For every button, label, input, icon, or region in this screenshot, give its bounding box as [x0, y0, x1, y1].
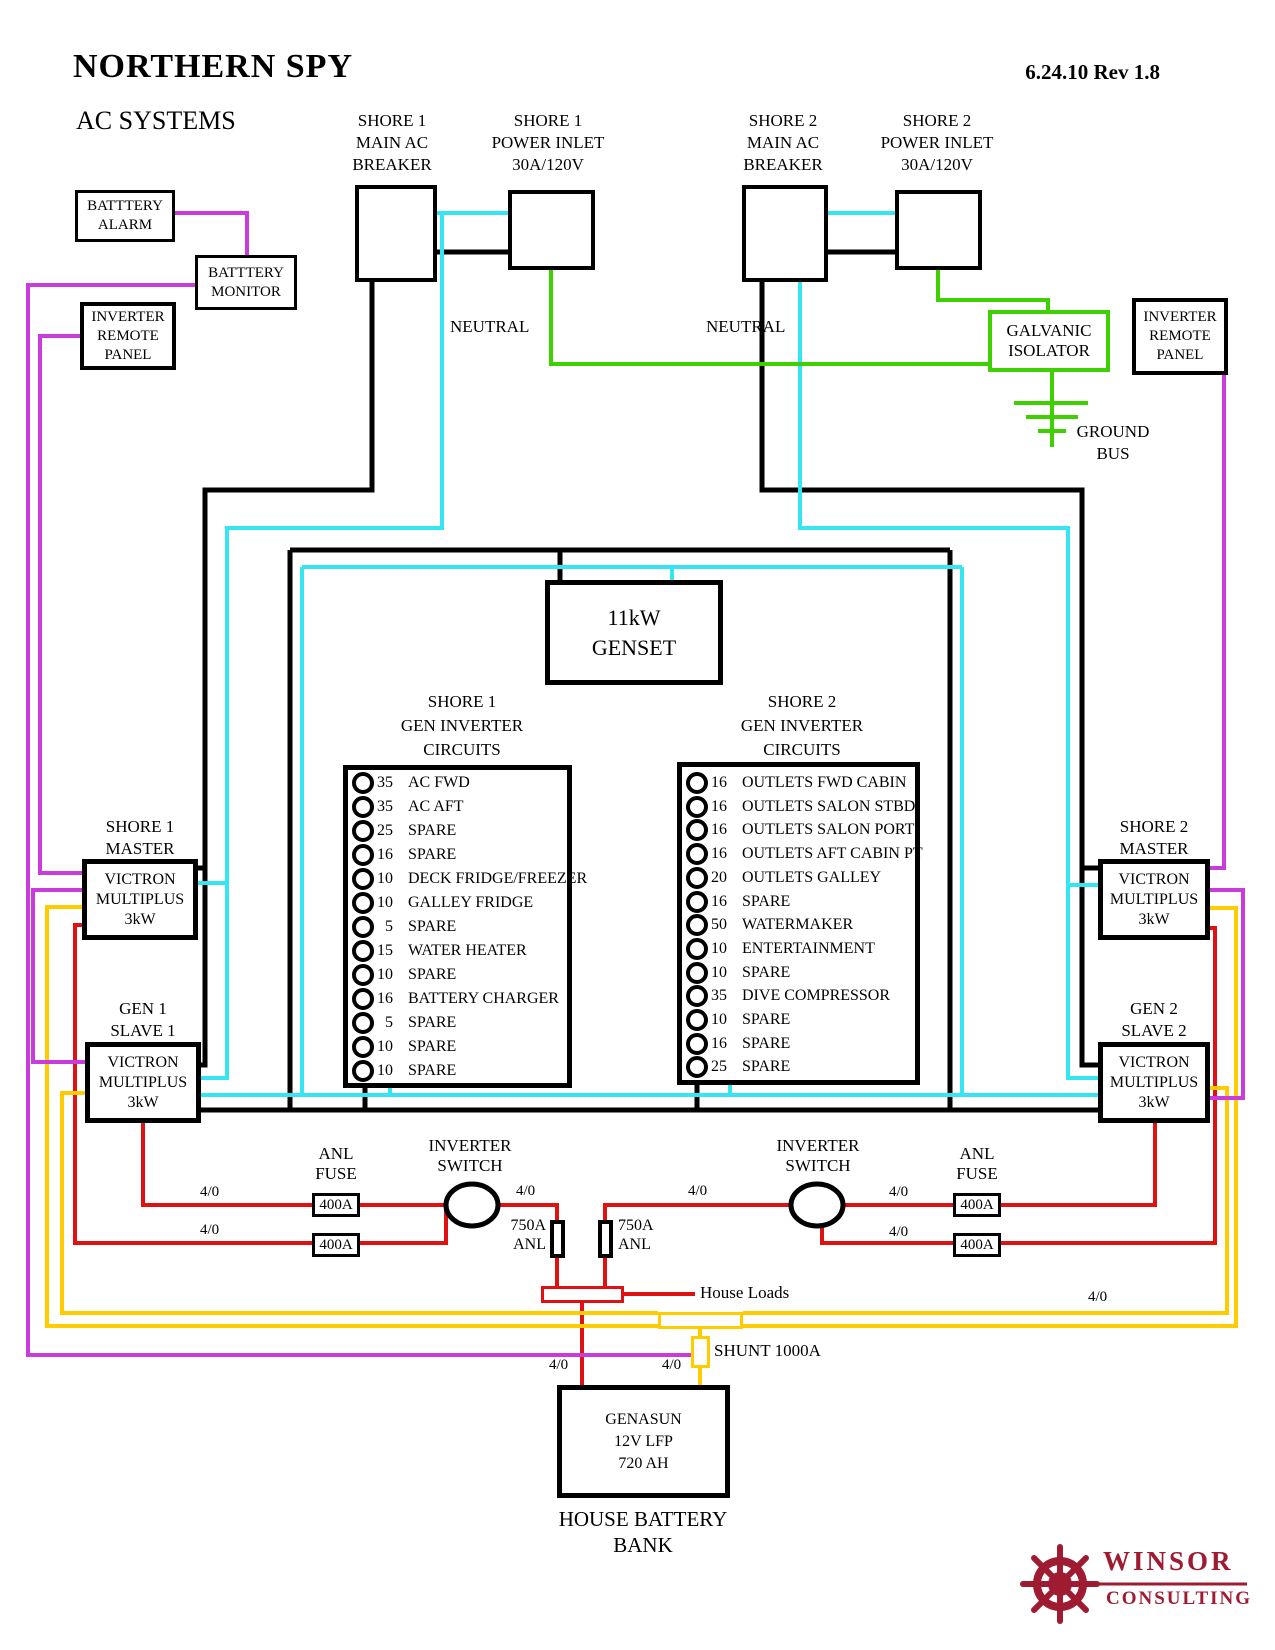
label-line: FUSE: [296, 1164, 376, 1184]
shore1-breaker-label: SHORE 1 MAIN AC BREAKER: [312, 110, 472, 176]
label-line: ISOLATOR: [1008, 341, 1090, 361]
circuit-row: 16SPARE: [682, 1032, 915, 1056]
circuit-row: 16OUTLETS SALON STBD: [682, 795, 915, 819]
label-line: SHORE 1: [468, 110, 628, 132]
inverter-switch-label-right: INVERTER SWITCH: [748, 1136, 888, 1176]
label-line: BANK: [513, 1532, 773, 1558]
shore1-power-inlet-box: [508, 190, 595, 270]
circuit-label: DIVE COMPRESSOR: [742, 984, 890, 1007]
neutral-label-shore2: NEUTRAL: [706, 316, 785, 338]
breaker-amps: 10: [363, 891, 393, 914]
circuit-row: 35AC FWD: [348, 771, 567, 795]
house-battery-box: GENASUN 12V LFP 720 AH: [557, 1385, 730, 1498]
circuit-label: OUTLETS GALLEY: [742, 866, 881, 889]
fuse-750a-right-box: [598, 1220, 613, 1258]
revision-label: 6.24.10 Rev 1.8: [1000, 60, 1160, 85]
breaker-amps: 50: [697, 913, 727, 936]
circuit-label: DECK FRIDGE/FREEZER: [408, 867, 587, 890]
label-line: MASTER: [1084, 838, 1224, 860]
label-line: MULTIPLUS: [1110, 1073, 1198, 1093]
circuit-label: SPARE: [408, 843, 456, 866]
awg-label: 4/0: [200, 1222, 219, 1239]
label-line: GENASUN: [605, 1409, 681, 1431]
label-line: SHORE 2: [857, 110, 1017, 132]
slave2-label: GEN 2 SLAVE 2: [1084, 998, 1224, 1042]
breaker-amps: 16: [697, 795, 727, 818]
label-line: INVERTER: [1143, 308, 1216, 327]
circuit-row: 16BATTERY CHARGER: [348, 987, 567, 1011]
label-line: BREAKER: [703, 154, 863, 176]
circuit-label: OUTLETS SALON STBD: [742, 795, 915, 818]
label-line: ANL: [494, 1235, 546, 1254]
circuit-label: GALLEY FRIDGE: [408, 891, 533, 914]
circuit-label: SPARE: [408, 1011, 456, 1034]
breaker-amps: 16: [697, 818, 727, 841]
fuse-750a-left-box: [550, 1220, 565, 1258]
label-line: VICTRON: [1118, 1053, 1189, 1073]
label-line: 400A: [319, 1235, 352, 1255]
breaker-amps: 10: [363, 1035, 393, 1058]
label-line: REMOTE: [1149, 327, 1211, 346]
ground-bus-label: GROUND BUS: [1070, 421, 1156, 465]
galvanic-isolator-box: GALVANIC ISOLATOR: [988, 310, 1110, 372]
circuit-label: SPARE: [742, 1032, 790, 1055]
inverter-remote-panel-left-box: INVERTER REMOTE PANEL: [80, 302, 176, 370]
label-line: BATTTERY: [208, 264, 284, 283]
victron-master1-box: VICTRON MULTIPLUS 3kW: [82, 859, 198, 940]
victron-slave1-box: VICTRON MULTIPLUS 3kW: [85, 1042, 201, 1123]
label-line: 750A: [494, 1216, 546, 1235]
label-line: INVERTER: [400, 1136, 540, 1156]
circuit-label: SPARE: [408, 819, 456, 842]
neutral-label-shore1: NEUTRAL: [450, 316, 529, 338]
label-line: 30A/120V: [857, 154, 1017, 176]
circuit-label: SPARE: [408, 915, 456, 938]
awg-label: 4/0: [662, 1357, 681, 1374]
circuit-row: 10SPARE: [348, 1035, 567, 1059]
circuit-row: 16OUTLETS SALON PORT: [682, 818, 915, 842]
circuit-row: 16OUTLETS AFT CABIN PT: [682, 842, 915, 866]
label-line: INVERTER: [91, 308, 164, 327]
label-line: 400A: [960, 1195, 993, 1215]
circuit-row: 5SPARE: [348, 1011, 567, 1035]
breaker-amps: 16: [363, 843, 393, 866]
label-line: 30A/120V: [468, 154, 628, 176]
breaker-amps: 15: [363, 939, 393, 962]
awg-label: 4/0: [889, 1184, 908, 1201]
fuse-750a-left-label: 750A ANL: [494, 1216, 546, 1254]
label-line: MASTER: [70, 838, 210, 860]
breaker-amps: 16: [697, 771, 727, 794]
circuit-label: WATERMAKER: [742, 913, 853, 936]
breaker-amps: 10: [363, 963, 393, 986]
shore2-circuit-list: 16OUTLETS FWD CABIN16OUTLETS SALON STBD1…: [677, 762, 920, 1085]
label-line: ANL: [618, 1235, 670, 1254]
circuit-row: 20OUTLETS GALLEY: [682, 866, 915, 890]
circuit-row: 50WATERMAKER: [682, 913, 915, 937]
shore2-power-inlet-box: [895, 190, 982, 270]
circuit-label: WATER HEATER: [408, 939, 527, 962]
label-line: SHORE 1: [70, 816, 210, 838]
shore1-main-breaker-box: [355, 185, 437, 282]
logo-company-name: WINSOR: [1103, 1546, 1234, 1577]
circuit-label: SPARE: [742, 1055, 790, 1078]
breaker-amps: 10: [363, 867, 393, 890]
fuse-400a-box: 400A: [312, 1233, 360, 1257]
battery-monitor-box: BATTTERY MONITOR: [195, 255, 297, 310]
circuit-label: OUTLETS FWD CABIN: [742, 771, 906, 794]
shunt-box: [691, 1336, 710, 1368]
breaker-amps: 16: [697, 842, 727, 865]
circuit-label: SPARE: [742, 890, 790, 913]
anl-fuse-label-right: ANL FUSE: [937, 1144, 1017, 1184]
label-line: ANL: [296, 1144, 376, 1164]
label-line: INVERTER: [748, 1136, 888, 1156]
label-line: POWER INLET: [857, 132, 1017, 154]
breaker-amps: 20: [697, 866, 727, 889]
label-line: GEN INVERTER: [362, 714, 562, 738]
breaker-amps: 10: [363, 1059, 393, 1082]
circuit-label: OUTLETS AFT CABIN PT: [742, 842, 923, 865]
shore2-breaker-label: SHORE 2 MAIN AC BREAKER: [703, 110, 863, 176]
label-line: SWITCH: [400, 1156, 540, 1176]
house-loads-label: House Loads: [700, 1282, 789, 1304]
circuit-label: SPARE: [408, 1059, 456, 1082]
circuit-label: SPARE: [742, 961, 790, 984]
inverter-remote-panel-right-box: INVERTER REMOTE PANEL: [1132, 298, 1228, 375]
label-line: SHORE 2: [1084, 816, 1224, 838]
circuit-row: 10SPARE: [348, 963, 567, 987]
label-line: PANEL: [105, 346, 152, 365]
breaker-amps: 10: [697, 961, 727, 984]
circuit-label: AC FWD: [408, 771, 470, 794]
master2-label: SHORE 2 MASTER: [1084, 816, 1224, 860]
circuit-row: 35DIVE COMPRESSOR: [682, 984, 915, 1008]
label-line: MULTIPLUS: [96, 890, 184, 910]
circuit-label: BATTERY CHARGER: [408, 987, 559, 1010]
dc-positive-wires: [75, 925, 1215, 1385]
label-line: BREAKER: [312, 154, 472, 176]
page-title: NORTHERN SPY: [73, 48, 353, 86]
breaker-amps: 16: [363, 987, 393, 1010]
label-line: CIRCUITS: [702, 738, 902, 762]
circuit-row: 16SPARE: [682, 890, 915, 914]
label-line: VICTRON: [104, 870, 175, 890]
circuit-label: ENTERTAINMENT: [742, 937, 875, 960]
circuit-label: SPARE: [408, 963, 456, 986]
inverter-switch-label-left: INVERTER SWITCH: [400, 1136, 540, 1176]
shore2-inlet-label: SHORE 2 POWER INLET 30A/120V: [857, 110, 1017, 176]
circuit-label: AC AFT: [408, 795, 464, 818]
label-line: MULTIPLUS: [1110, 890, 1198, 910]
label-line: GEN 2: [1084, 998, 1224, 1020]
circuit-row: 15WATER HEATER: [348, 939, 567, 963]
awg-label: 4/0: [200, 1184, 219, 1201]
circuit-row: 10GALLEY FRIDGE: [348, 891, 567, 915]
fuse-750a-right-label: 750A ANL: [618, 1216, 670, 1254]
awg-label: 4/0: [549, 1357, 568, 1374]
breaker-amps: 35: [363, 795, 393, 818]
awg-label: 4/0: [688, 1183, 707, 1200]
label-line: SHORE 2: [702, 690, 902, 714]
label-line: MAIN AC: [312, 132, 472, 154]
circuit-label: SPARE: [408, 1035, 456, 1058]
page-subtitle: AC SYSTEMS: [76, 106, 236, 136]
fuse-400a-box: 400A: [312, 1193, 360, 1217]
label-line: 3kW: [1138, 910, 1169, 930]
label-line: GEN INVERTER: [702, 714, 902, 738]
shore2-main-breaker-box: [742, 185, 828, 282]
label-line: PANEL: [1157, 346, 1204, 365]
breaker-amps: 35: [697, 984, 727, 1007]
fuse-400a-box: 400A: [953, 1193, 1001, 1217]
label-line: GENSET: [592, 633, 676, 663]
label-line: 3kW: [124, 910, 155, 930]
circuit-row: 10ENTERTAINMENT: [682, 937, 915, 961]
circuit-row: 35AC AFT: [348, 795, 567, 819]
breaker-amps: 35: [363, 771, 393, 794]
label-line: POWER INLET: [468, 132, 628, 154]
breaker-amps: 10: [697, 1008, 727, 1031]
breaker-amps: 10: [697, 937, 727, 960]
label-line: MULTIPLUS: [99, 1073, 187, 1093]
house-battery-bank-label: HOUSE BATTERY BANK: [513, 1506, 773, 1558]
circuit-row: 5SPARE: [348, 915, 567, 939]
shore1-circuit-list: 35AC FWD35AC AFT25SPARE16SPARE10DECK FRI…: [343, 765, 572, 1088]
label-line: FUSE: [937, 1164, 1017, 1184]
breaker-amps: 16: [697, 1032, 727, 1055]
awg-label: 4/0: [516, 1183, 535, 1200]
label-line: SLAVE 2: [1084, 1020, 1224, 1042]
fuse-400a-box: 400A: [953, 1233, 1001, 1257]
label-line: SHORE 1: [362, 690, 562, 714]
victron-master2-box: VICTRON MULTIPLUS 3kW: [1098, 859, 1210, 940]
breaker-amps: 25: [697, 1055, 727, 1078]
ac-systems-diagram: NORTHERN SPY AC SYSTEMS 6.24.10 Rev 1.8 …: [0, 0, 1275, 1650]
awg-label: 4/0: [1088, 1289, 1107, 1306]
battery-alarm-box: BATTTERY ALARM: [75, 190, 175, 242]
label-line: GEN 1: [73, 998, 213, 1020]
label-line: SHORE 1: [312, 110, 472, 132]
label-line: GALVANIC: [1006, 321, 1091, 341]
label-line: HOUSE BATTERY: [513, 1506, 773, 1532]
label-line: SWITCH: [748, 1156, 888, 1176]
label-line: 3kW: [1138, 1093, 1169, 1113]
circuit-row: 10SPARE: [682, 961, 915, 985]
logo-company-sub: CONSULTING: [1106, 1588, 1252, 1610]
circuit-row: 25SPARE: [348, 819, 567, 843]
label-line: 11kW: [608, 603, 661, 633]
label-line: ANL: [937, 1144, 1017, 1164]
label-line: MAIN AC: [703, 132, 863, 154]
victron-slave2-box: VICTRON MULTIPLUS 3kW: [1098, 1042, 1210, 1123]
label-line: 750A: [618, 1216, 670, 1235]
circuit-row: 25SPARE: [682, 1055, 915, 1079]
slave1-label: GEN 1 SLAVE 1: [73, 998, 213, 1042]
label-line: SHORE 2: [703, 110, 863, 132]
shunt-label: SHUNT 1000A: [714, 1340, 821, 1362]
breaker-amps: 5: [363, 915, 393, 938]
label-line: SLAVE 1: [73, 1020, 213, 1042]
genset-box: 11kW GENSET: [545, 580, 723, 685]
label-line: 400A: [960, 1235, 993, 1255]
shore1-inlet-label: SHORE 1 POWER INLET 30A/120V: [468, 110, 628, 176]
house-loads-bus: [541, 1286, 624, 1303]
label-line: 3kW: [127, 1093, 158, 1113]
label-line: REMOTE: [97, 327, 159, 346]
shore1-panel-header: SHORE 1 GEN INVERTER CIRCUITS: [362, 690, 562, 762]
circuit-label: OUTLETS SALON PORT: [742, 818, 914, 841]
label-line: CIRCUITS: [362, 738, 562, 762]
label-line: BUS: [1070, 443, 1156, 465]
breaker-amps: 16: [697, 890, 727, 913]
circuit-row: 10DECK FRIDGE/FREEZER: [348, 867, 567, 891]
shore2-panel-header: SHORE 2 GEN INVERTER CIRCUITS: [702, 690, 902, 762]
breaker-amps: 25: [363, 819, 393, 842]
circuit-row: 10SPARE: [348, 1059, 567, 1083]
label-line: 720 AH: [618, 1453, 668, 1475]
awg-label: 4/0: [889, 1224, 908, 1241]
master1-label: SHORE 1 MASTER: [70, 816, 210, 860]
label-line: ALARM: [98, 216, 152, 235]
circuit-label: SPARE: [742, 1008, 790, 1031]
label-line: VICTRON: [107, 1053, 178, 1073]
label-line: VICTRON: [1118, 870, 1189, 890]
circuit-row: 16SPARE: [348, 843, 567, 867]
anl-fuse-label-left: ANL FUSE: [296, 1144, 376, 1184]
label-line: 400A: [319, 1195, 352, 1215]
label-line: BATTTERY: [87, 197, 163, 216]
label-line: MONITOR: [211, 283, 281, 302]
negative-bus: [658, 1312, 743, 1329]
circuit-row: 16OUTLETS FWD CABIN: [682, 771, 915, 795]
circuit-row: 10SPARE: [682, 1008, 915, 1032]
breaker-amps: 5: [363, 1011, 393, 1034]
label-line: GROUND: [1070, 421, 1156, 443]
label-line: 12V LFP: [614, 1431, 673, 1453]
